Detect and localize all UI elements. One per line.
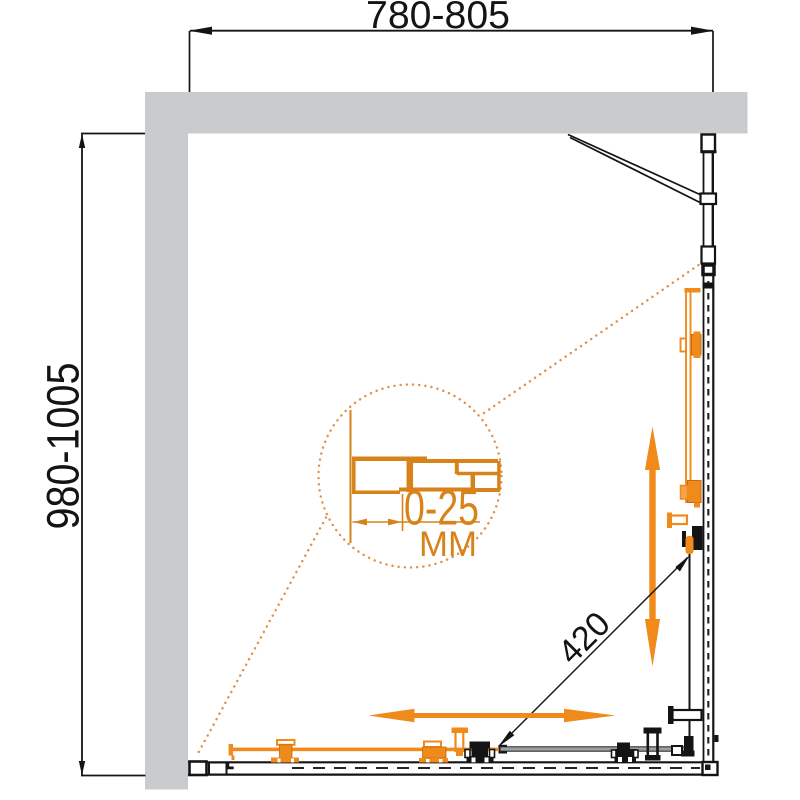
svg-text:980-1005: 980-1005	[38, 363, 89, 530]
svg-text:780-805: 780-805	[366, 0, 510, 37]
svg-text:MM: MM	[419, 524, 477, 564]
